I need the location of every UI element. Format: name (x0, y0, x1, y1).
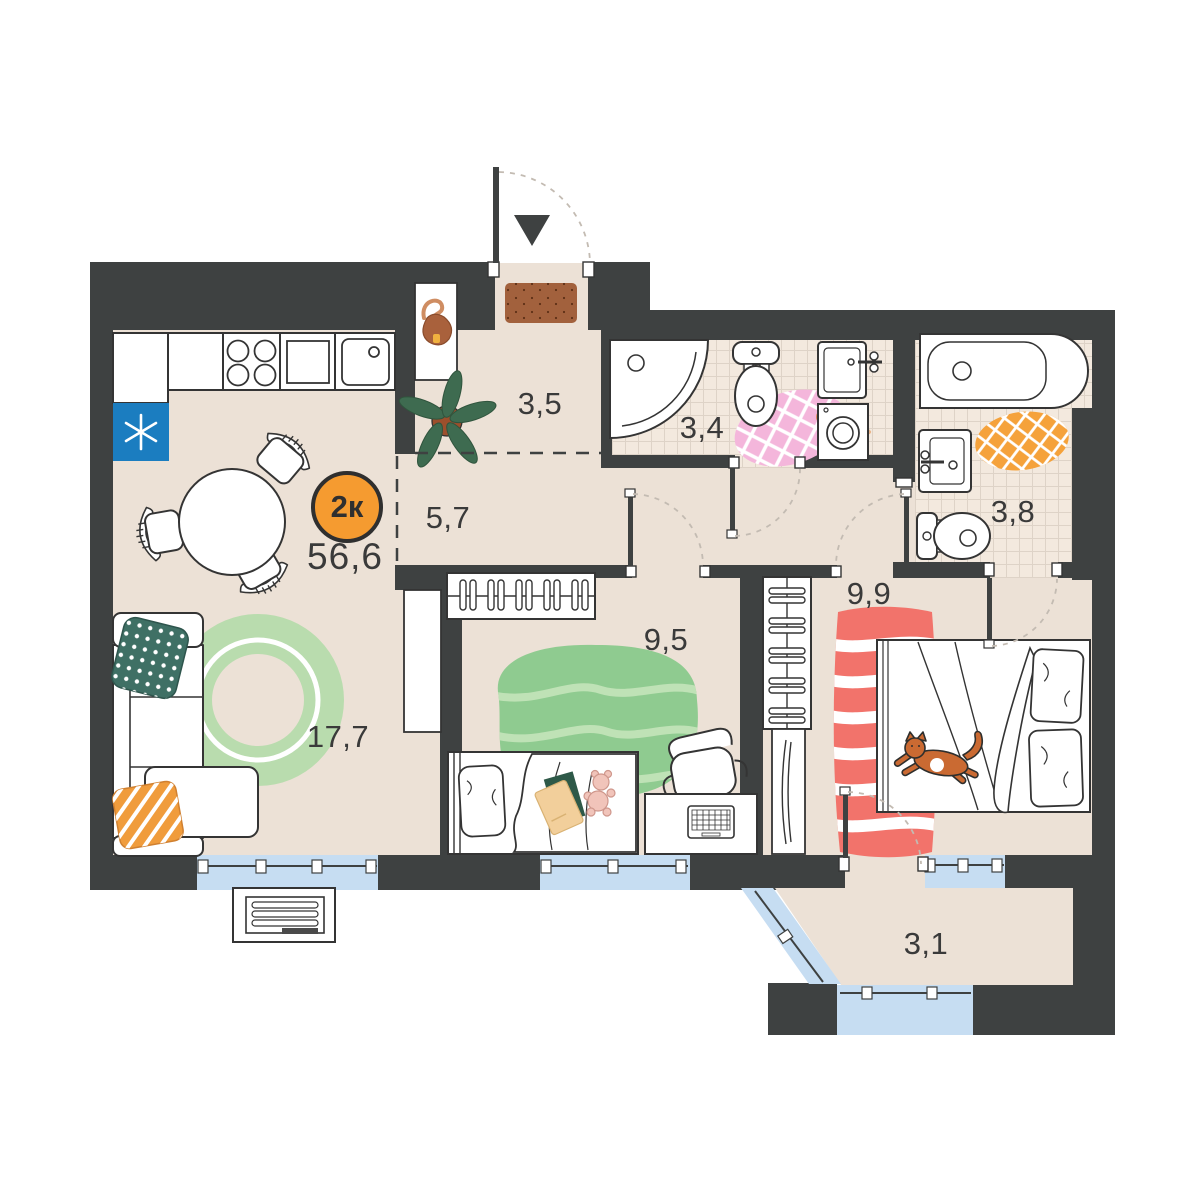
kids-window (540, 855, 690, 890)
apartment-type-badge: 2к (311, 471, 383, 543)
toilet-icon (733, 342, 779, 426)
hall-console (415, 283, 457, 380)
bedroom-mirror-panel (772, 729, 805, 854)
floor-plan: 3,5 5,7 3,4 3,8 9,9 9,5 17,7 3,1 56,6 2к (0, 0, 1200, 1200)
kids-door-leaf (628, 494, 633, 566)
bath-sink-icon (818, 342, 882, 398)
bedroom-door-leaf (904, 494, 909, 566)
bathroom-door-leaf (730, 468, 735, 534)
bed-pillow (1030, 649, 1084, 724)
living-wardrobe (404, 590, 441, 732)
plant-icon (397, 369, 499, 470)
room-label-balcony: 3,1 (904, 926, 949, 962)
kitchen-counter (113, 333, 395, 403)
bed-pillow (1029, 729, 1084, 807)
washing-machine-icon (818, 404, 868, 460)
doormat-texture (505, 283, 577, 323)
oven-icon (287, 341, 329, 383)
entrance-door-leaf (493, 167, 499, 263)
ensuite-toilet-icon (917, 513, 990, 559)
fridge-icon (113, 403, 169, 461)
living-window (197, 855, 378, 890)
room-label-bedroom: 9,9 (847, 576, 892, 612)
bathtub-icon (920, 334, 1088, 408)
ensuite-orange-rug (971, 406, 1072, 477)
balcony-door-leaf (843, 792, 848, 858)
plan-graphics (0, 0, 1200, 1200)
ensuite-sink-icon (919, 430, 971, 492)
room-label-hallway: 3,5 (518, 386, 563, 422)
kids-wardrobe-icon (447, 573, 595, 619)
sink-icon (342, 339, 389, 385)
double-bed (877, 640, 1090, 812)
laptop-icon (688, 806, 734, 838)
bedroom-window (925, 855, 1005, 888)
dining-chair (132, 502, 186, 563)
entrance-arrow-icon (514, 215, 550, 246)
kids-pillow (458, 765, 506, 837)
room-label-corridor: 5,7 (426, 500, 471, 536)
room-label-ensuite: 3,8 (991, 494, 1036, 530)
bedroom-closet-icon (763, 577, 811, 729)
ensuite-door-leaf (987, 578, 992, 644)
ac-unit-icon (233, 888, 335, 942)
room-label-kids-room: 9,5 (644, 622, 689, 658)
orange-pillow (111, 780, 184, 850)
kitchen-tall-cabinet (113, 333, 168, 403)
room-label-living-kitchen: 17,7 (307, 719, 369, 755)
room-label-bathroom: 3,4 (680, 410, 725, 446)
dining-table (179, 469, 285, 575)
